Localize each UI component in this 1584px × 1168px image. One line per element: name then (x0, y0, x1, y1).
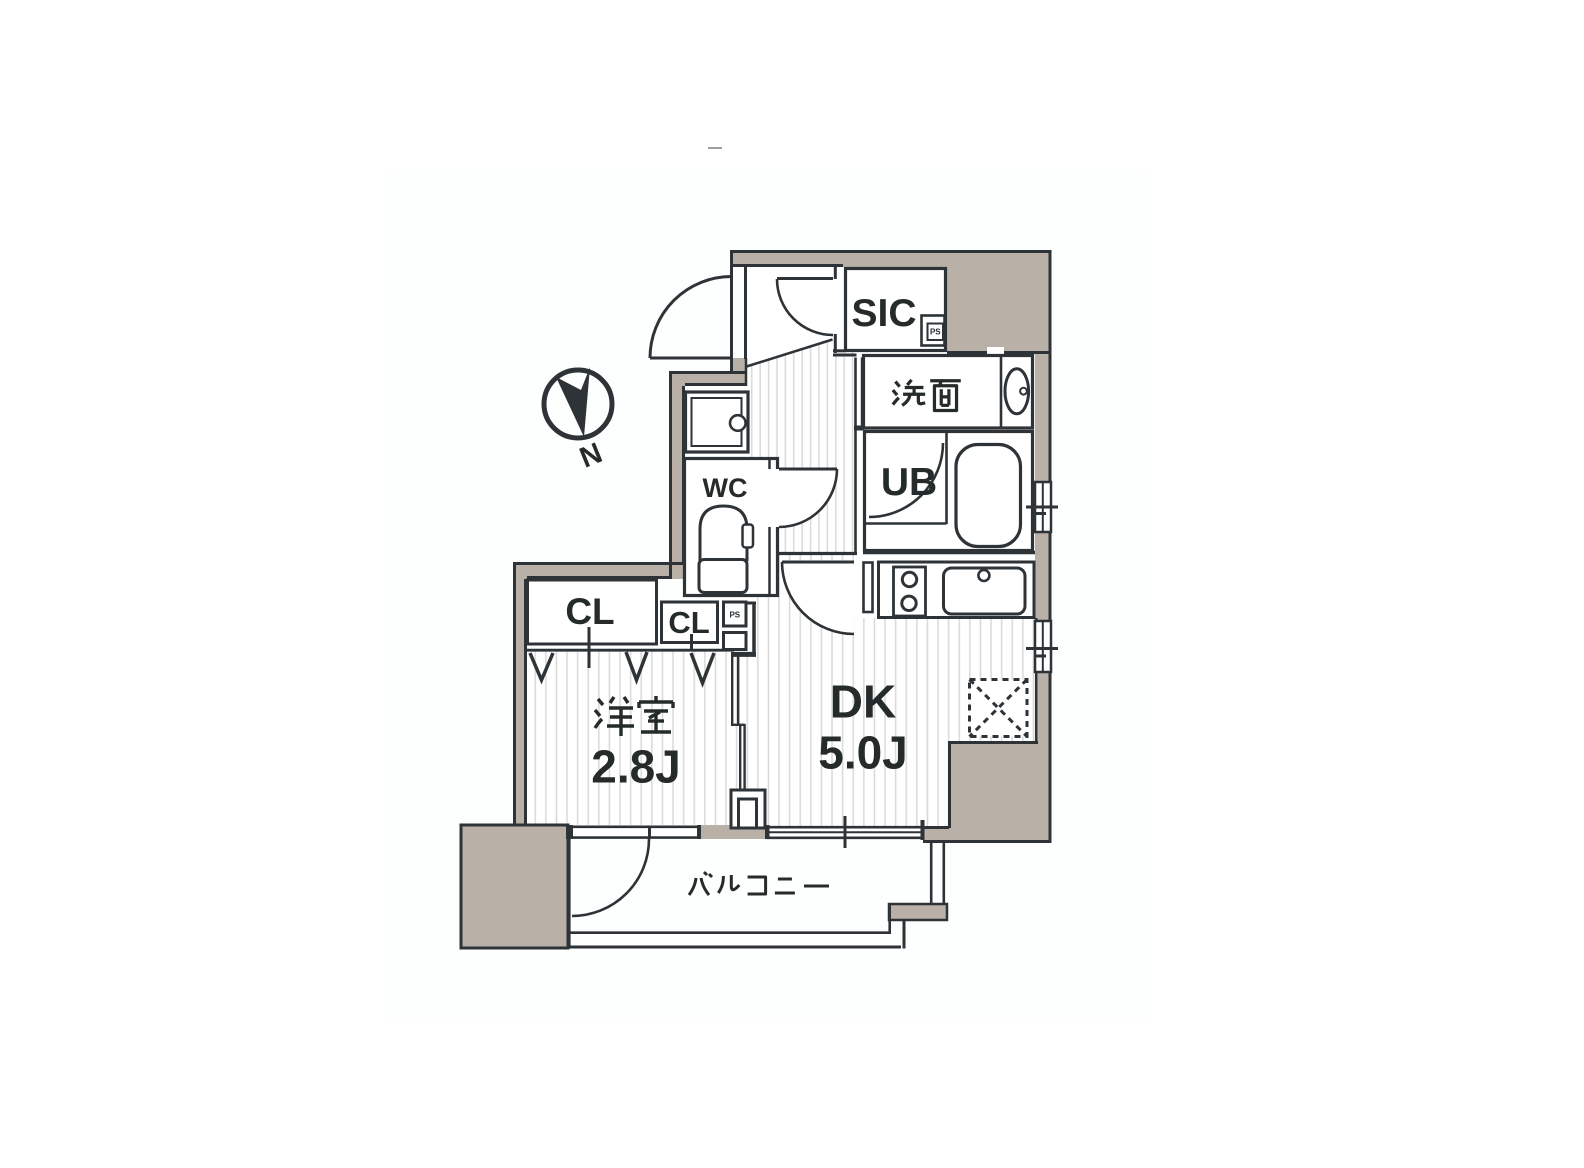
svg-text:PS: PS (930, 328, 941, 337)
svg-text:DK: DK (830, 676, 896, 728)
svg-text:SIC: SIC (851, 292, 916, 335)
svg-text:PS: PS (729, 611, 740, 620)
svg-text:5.0J: 5.0J (818, 727, 908, 779)
svg-text:UB: UB (881, 461, 937, 504)
svg-text:WC: WC (703, 473, 748, 503)
svg-text:CL: CL (668, 605, 709, 640)
svg-text:2.8J: 2.8J (591, 741, 681, 793)
svg-text:CL: CL (565, 591, 614, 632)
